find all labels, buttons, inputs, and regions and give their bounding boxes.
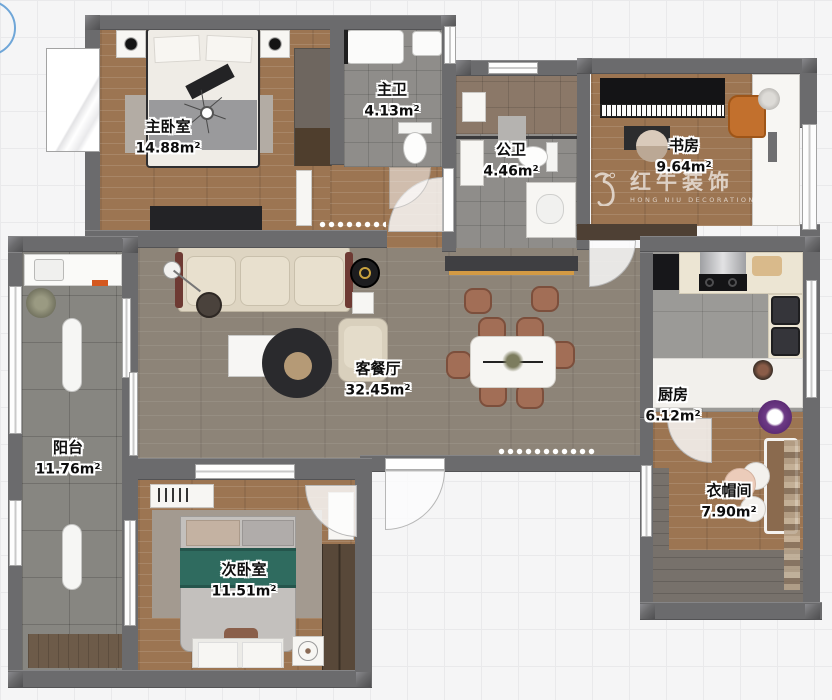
window[interactable]: [9, 286, 22, 434]
coffee-table-inner: [284, 352, 312, 380]
bath-cabinet[interactable]: [460, 140, 484, 186]
wok: [753, 360, 773, 380]
window[interactable]: [444, 26, 456, 64]
watermark-brand: 红牛装饰: [630, 172, 756, 193]
window[interactable]: [488, 62, 538, 74]
sofa-arm-pillow: [175, 252, 183, 308]
toilet-bowl: [403, 132, 427, 164]
wall-corner: [802, 58, 817, 73]
wall: [577, 58, 817, 74]
label-master-bath: 主卫 4.13m²: [364, 79, 419, 124]
wall-corner: [8, 672, 23, 687]
room-name: 次卧室: [211, 559, 276, 582]
piano-keys: [600, 104, 725, 117]
window[interactable]: [124, 520, 136, 626]
room-name: 阳台: [35, 437, 100, 460]
room-name: 主卧室: [135, 116, 200, 139]
bathroom-sink[interactable]: [412, 31, 442, 56]
watermark-subtitle: HONG NIU DECORATION: [630, 196, 756, 204]
wall: [8, 236, 138, 252]
room-area: 11.51m²: [211, 582, 276, 604]
window[interactable]: [195, 464, 295, 479]
room-area: 7.90m²: [701, 503, 756, 525]
entry-door-swing[interactable]: [385, 470, 445, 530]
wall: [640, 236, 820, 252]
side-table[interactable]: [352, 292, 374, 314]
entry-console[interactable]: [445, 256, 578, 271]
kitchen-sink: [771, 327, 800, 356]
room-name: 主卫: [364, 79, 419, 102]
room-area: 4.46m²: [483, 162, 538, 184]
door-leaf[interactable]: [443, 168, 454, 232]
wall: [85, 148, 100, 238]
burner: [705, 278, 714, 287]
room-area: 6.12m²: [645, 407, 700, 429]
drying-rack[interactable]: [62, 318, 82, 392]
door-leaf[interactable]: [385, 458, 445, 470]
dining-chair[interactable]: [531, 286, 559, 312]
bed-pillow: [205, 35, 252, 63]
wall: [330, 15, 344, 165]
dining-chair[interactable]: [464, 288, 492, 314]
watermark: 红牛装饰 HONG NIU DECORATION: [588, 170, 756, 206]
wardrobe[interactable]: [322, 544, 356, 674]
shoe-cabinet-dots: [497, 448, 597, 455]
wall: [640, 602, 822, 620]
orange-item: [92, 280, 108, 286]
sofa-cushion: [294, 256, 344, 306]
label-living-dining: 客餐厅 32.45m²: [345, 358, 410, 403]
room-area: 4.13m²: [364, 102, 419, 124]
cloakroom-dark-band-h: [653, 550, 803, 606]
room-name: 衣帽间: [701, 480, 756, 503]
label-cloakroom: 衣帽间 7.90m²: [701, 480, 756, 525]
room-area: 11.76m²: [35, 460, 100, 482]
laundry-sink: [34, 259, 64, 281]
dining-centerpiece: [502, 350, 524, 372]
wall-corner: [356, 672, 371, 687]
floor-lamp-icon: [163, 261, 181, 279]
fridge[interactable]: [653, 254, 679, 290]
entry-console-accent: [449, 271, 574, 275]
wall: [577, 58, 590, 250]
floor-lamp-shade: [196, 292, 222, 318]
room-name: 公卫: [483, 139, 538, 162]
wall-corner: [456, 60, 471, 75]
bay-window[interactable]: [802, 124, 817, 230]
window[interactable]: [806, 280, 817, 398]
floorplan-canvas: 主卧室 14.88m² 主卫 4.13m² 公卫 4.46m² 书房 9.64m…: [0, 0, 832, 700]
ceiling-fan-ring: [298, 641, 318, 661]
balcony-mat: [28, 634, 122, 668]
wall-corner: [123, 238, 138, 253]
desk-lamp-icon: [758, 88, 780, 110]
wall: [355, 458, 372, 688]
washer[interactable]: [462, 92, 486, 122]
range-hood: [700, 252, 746, 274]
plant-icon: [26, 288, 56, 318]
bench-pillow: [242, 642, 282, 668]
bed-pillow: [186, 520, 240, 546]
dining-chair[interactable]: [446, 351, 472, 379]
ceiling-lamp-icon: [200, 106, 214, 120]
burner: [728, 278, 737, 287]
sliding-door-panel[interactable]: [122, 298, 131, 378]
dresser[interactable]: [296, 170, 312, 226]
wall-corner: [577, 58, 592, 73]
kitchen-sink: [771, 296, 800, 325]
wall-corner: [640, 604, 655, 619]
label-public-bath: 公卫 4.46m²: [483, 139, 538, 184]
wardrobe-shelf: [295, 128, 331, 166]
bull-logo-icon: [588, 170, 624, 206]
clothes-rack[interactable]: [784, 440, 800, 590]
compass-circle-icon: [0, 0, 16, 56]
label-second-bedroom: 次卧室 11.51m²: [211, 559, 276, 604]
cutting-board: [752, 256, 782, 276]
bed-pillow: [242, 520, 294, 546]
room-area: 32.45m²: [345, 381, 410, 403]
robot-vacuum-ring: [359, 267, 371, 279]
sliding-door-panel[interactable]: [129, 372, 138, 456]
room-area: 14.88m²: [135, 139, 200, 161]
drying-rack[interactable]: [62, 524, 82, 590]
label-balcony: 阳台 11.76m²: [35, 437, 100, 482]
closet-hanger-dots: [318, 221, 386, 228]
room-name: 厨房: [645, 384, 700, 407]
wall-corner: [805, 604, 820, 619]
wall-corner: [805, 237, 820, 252]
vanity-sink: [536, 194, 564, 224]
books: [158, 488, 192, 502]
window[interactable]: [9, 500, 22, 566]
wall-corner: [8, 237, 23, 252]
bay-window[interactable]: [46, 48, 100, 152]
bench-pillow: [198, 642, 238, 668]
room-name: 客餐厅: [345, 358, 410, 381]
table-lamp-icon: [268, 37, 282, 51]
bed-pillow: [153, 35, 200, 63]
label-master-bedroom: 主卧室 14.88m²: [135, 116, 200, 161]
wall: [8, 670, 372, 688]
window[interactable]: [641, 465, 652, 537]
wall-corner: [85, 15, 100, 30]
washing-machine-icon[interactable]: [758, 400, 792, 434]
label-kitchen: 厨房 6.12m²: [645, 384, 700, 429]
table-lamp-icon: [124, 37, 138, 51]
wall: [85, 15, 456, 30]
bathtub[interactable]: [346, 30, 404, 64]
sofa-cushion: [240, 256, 290, 306]
monitor: [768, 132, 777, 162]
room-name: 书房: [656, 135, 711, 158]
tv-console[interactable]: [150, 206, 262, 232]
